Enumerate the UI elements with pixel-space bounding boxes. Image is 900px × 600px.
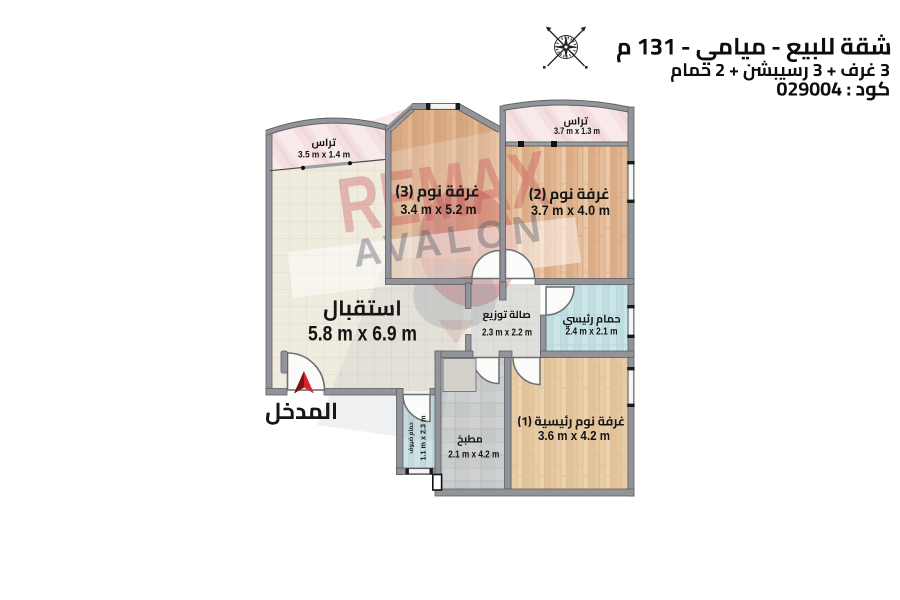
svg-text:3.7 m x 1.3 m: 3.7 m x 1.3 m xyxy=(554,126,600,136)
svg-text:2.3 m x 2.2 m: 2.3 m x 2.2 m xyxy=(482,328,532,339)
svg-text:3.6 m x 4.2 m: 3.6 m x 4.2 m xyxy=(538,428,610,443)
svg-text:3.5 m x 1.4 m: 3.5 m x 1.4 m xyxy=(298,150,350,160)
svg-text:3.7 m x 4.0 m: 3.7 m x 4.0 m xyxy=(531,203,610,218)
svg-text:2.1 m x 4.2 m: 2.1 m x 4.2 m xyxy=(448,449,499,461)
svg-text:1.1 m x 2.3 m: 1.1 m x 2.3 m xyxy=(419,415,428,460)
svg-text:5.8 m x 6.9 m: 5.8 m x 6.9 m xyxy=(308,323,417,346)
svg-text:2.4 m x 2.1 m: 2.4 m x 2.1 m xyxy=(566,327,618,338)
svg-text:3.4 m x 5.2 m: 3.4 m x 5.2 m xyxy=(401,202,477,217)
